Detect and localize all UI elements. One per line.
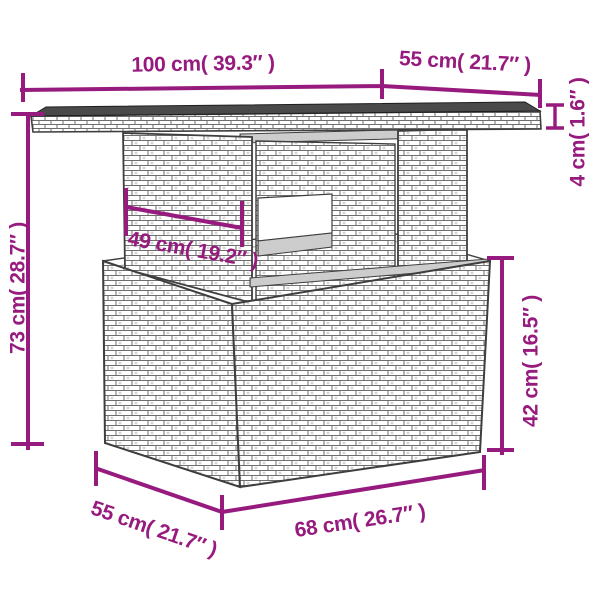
dimension-diagram-canvas: 100 cm( 39.3″ ) 55 cm( 21.7″ ) 4 cm( 1.6… [0,0,600,600]
dimension-top-width: 100 cm( 39.3″ ) [20,51,382,102]
dim-line-top-thickness [546,105,564,128]
dim-label-base-width: 68 cm( 26.7″ ) [293,500,427,542]
pedestal-right-panel [398,129,467,281]
table-top [31,102,541,132]
dim-label-base-height: 42 cm( 16.5″ ) [520,295,543,427]
dimension-top-thickness: 4 cm( 1.6″ ) [546,77,590,186]
dimension-top-depth: 55 cm( 21.7″ ) [382,47,541,108]
dim-label-total-height: 73 cm( 28.7″ ) [7,222,30,354]
dimension-base-height: 42 cm( 16.5″ ) [487,256,543,455]
dim-label-top-thickness: 4 cm( 1.6″ ) [567,77,590,186]
furniture-dimension-diagram: 100 cm( 39.3″ ) 55 cm( 21.7″ ) 4 cm( 1.6… [0,0,600,600]
dim-label-top-width: 100 cm( 39.3″ ) [131,51,275,76]
dimension-total-height: 73 cm( 28.7″ ) [7,112,45,450]
table-base-front [103,261,490,487]
dim-label-top-depth: 55 cm( 21.7″ ) [399,47,532,77]
dim-line-base-height [487,256,514,455]
